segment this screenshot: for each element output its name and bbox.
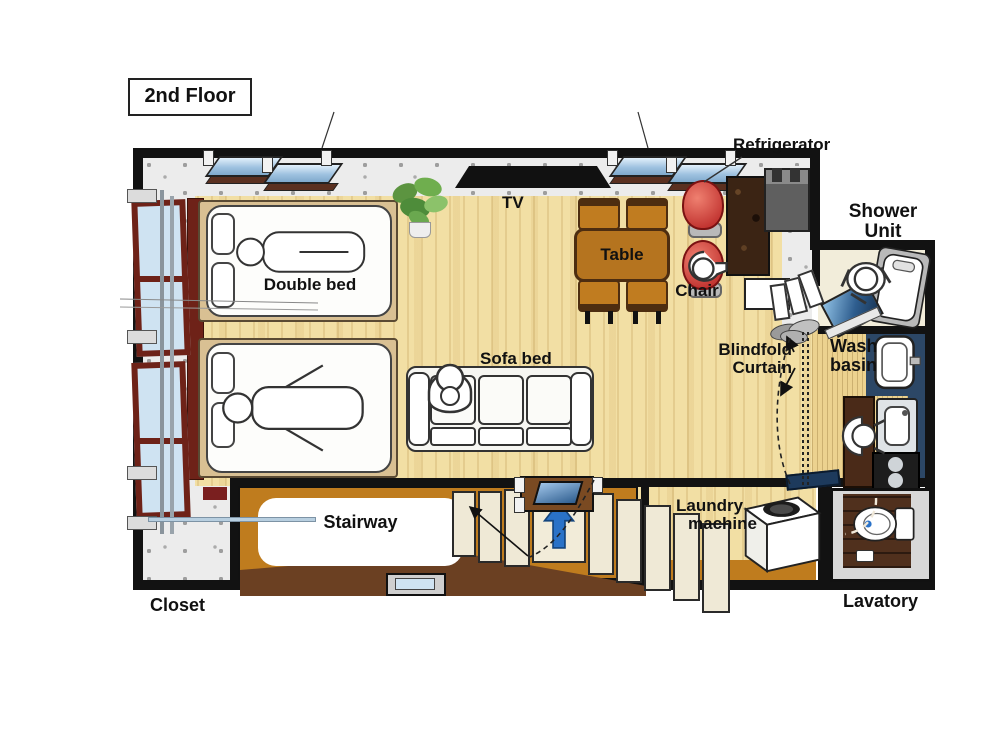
wash-basin: [872, 334, 922, 392]
floor-title: 2nd Floor: [144, 86, 235, 107]
shower-unit-label: Shower Unit: [838, 202, 928, 242]
tv-label: TV: [502, 194, 524, 212]
wash-basin-label: Wash basin: [830, 337, 877, 375]
tv: [455, 166, 611, 188]
wall-closet-divider: [230, 478, 238, 590]
stairway-label: Stairway: [258, 513, 463, 532]
person-figure: [836, 408, 888, 464]
blindfold-curtain-label: Blindfold Curtain: [698, 341, 792, 377]
sofa-bed-label: Sofa bed: [480, 350, 552, 368]
curtain-rail: [160, 190, 164, 534]
person-figure: [838, 250, 894, 308]
floor-title-box: 2nd Floor: [128, 78, 252, 116]
double-bed-label: Double bed: [240, 276, 380, 294]
chair-label: Chair: [668, 282, 726, 300]
dining-chair: [578, 280, 620, 312]
table: Table: [574, 228, 670, 282]
person-figure: [216, 346, 388, 470]
red-chair: [682, 180, 724, 230]
wall-right-main-upper: [810, 148, 820, 250]
person-figure: [420, 346, 480, 418]
dining-chair: [578, 198, 620, 230]
table-label: Table: [600, 246, 643, 264]
closet-accent: [203, 487, 227, 500]
toilet-roll: [856, 550, 874, 562]
laundry-machine-label: Laundry machine: [676, 497, 757, 533]
floor-plan-canvas: Double bed TV Table: [0, 0, 1000, 750]
toilet: [848, 502, 918, 546]
curtain-rail: [170, 196, 174, 534]
closet-rod: [148, 517, 316, 522]
dining-chair: [626, 198, 668, 230]
lavatory-label: Lavatory: [843, 592, 918, 611]
closet-label: Closet: [150, 596, 205, 615]
dining-chair: [626, 280, 668, 312]
refrigerator-label: Refrigerator: [733, 136, 830, 154]
